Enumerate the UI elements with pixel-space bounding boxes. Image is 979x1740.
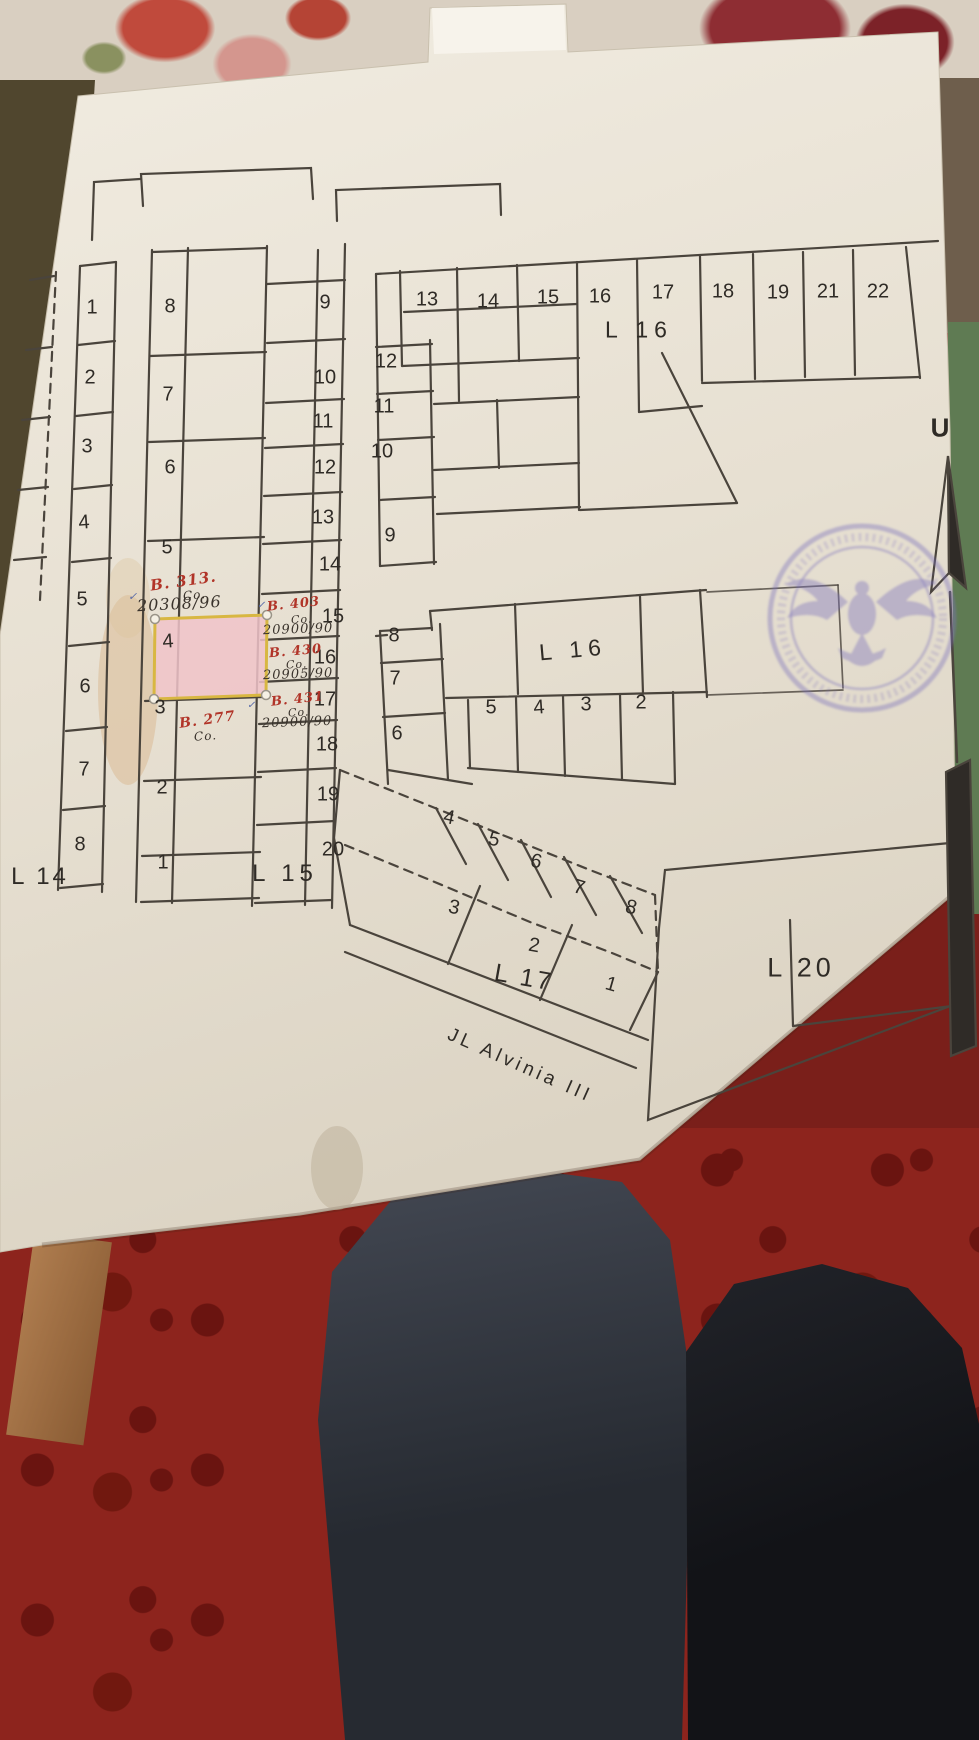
plot-label-l15-8: 8 <box>164 296 175 319</box>
plot-label-l15-18: 18 <box>316 734 338 757</box>
plot-label-l15-3: 3 <box>154 697 165 720</box>
plot-label-l16-16: 16 <box>589 286 611 309</box>
compass-tail <box>946 760 976 1056</box>
plot-label-l16b-5: 5 <box>485 697 496 720</box>
plot-label-l16-13: 13 <box>416 289 438 312</box>
plot-label-l14-4: 4 <box>78 511 91 535</box>
plot-label-l14-1: 1 <box>86 297 97 320</box>
plot-label-l14-3: 3 <box>81 436 92 459</box>
plot-label-l14-7: 7 <box>78 759 89 782</box>
plot-label-l15-10: 10 <box>314 367 336 390</box>
plot-label-l16b-7: 7 <box>389 668 400 691</box>
plot-label-l15-19: 19 <box>317 784 339 807</box>
plot-label-l14-8: 8 <box>74 834 85 857</box>
plot-label-l16-19: 19 <box>767 282 789 305</box>
plot-label-l16-11: 11 <box>374 396 395 419</box>
plot-label-l15-12: 12 <box>314 457 336 480</box>
block-label-l15: L 15 <box>252 860 318 888</box>
plot-label-l16-10: 10 <box>371 441 393 464</box>
plot-label-l15-20: 20 <box>322 839 344 862</box>
plot-label-l16-14: 14 <box>477 291 499 314</box>
plot-label-l15-2: 2 <box>156 777 167 800</box>
plot-label-l15-1: 1 <box>157 852 168 875</box>
plot-label-l14-6: 6 <box>79 676 90 699</box>
plot-label-l16b-4: 4 <box>533 696 546 720</box>
plot-label-l16b-2: 2 <box>635 692 646 715</box>
photo-of-plot-map: L 14 L 15 L 16 L 16 L 17 L 20 JL Alvinia… <box>0 0 979 1740</box>
handwriting-20905: 20905/90 <box>263 666 334 683</box>
plot-label-l15-14: 14 <box>319 554 341 577</box>
handwriting-check-2: ✓ <box>257 600 266 611</box>
plot-label-l14-2: 2 <box>84 367 95 390</box>
plot-label-l15-13: 13 <box>312 507 334 530</box>
plot-label-l16-21: 21 <box>817 281 839 304</box>
plot-label-l15-11: 11 <box>313 411 334 434</box>
compass-north-label: U <box>931 413 950 444</box>
plot-label-l15-5: 5 <box>161 537 172 560</box>
plot-label-l16-17: 17 <box>652 282 674 305</box>
plot-label-l15-7: 7 <box>162 384 173 407</box>
plot-label-l15-6: 6 <box>164 457 175 480</box>
block-label-l14: L 14 <box>11 863 69 891</box>
handwriting-check-1: ✓ <box>128 590 138 603</box>
plot-label-l16b-3: 3 <box>580 694 591 717</box>
handwriting-check-3: ✓ <box>247 700 256 711</box>
handwriting-20900b: 20900/90 <box>262 714 333 731</box>
plot-label-l16-18: 18 <box>712 281 734 304</box>
plot-label-l16b-6: 6 <box>391 723 402 746</box>
handwriting-co-5: Co. <box>194 728 218 744</box>
block-label-l16-top: L 16 <box>605 317 673 344</box>
plot-label-l16b-8: 8 <box>388 625 399 648</box>
plot-label-l15-4: 4 <box>162 630 175 654</box>
highlighted-plot <box>150 611 272 704</box>
plot-label-l16-22: 22 <box>867 281 889 304</box>
plot-label-l14-5: 5 <box>76 589 87 612</box>
handwriting-20900a: 20900/90 <box>263 621 334 638</box>
map-drawing <box>0 0 979 1740</box>
plot-label-l16-15: 15 <box>537 287 559 310</box>
block-label-l20: L 20 <box>767 953 835 984</box>
plot-label-l15-9: 9 <box>319 292 330 315</box>
plot-label-l16-9: 9 <box>384 525 395 548</box>
plot-label-l16-12: 12 <box>375 351 397 374</box>
